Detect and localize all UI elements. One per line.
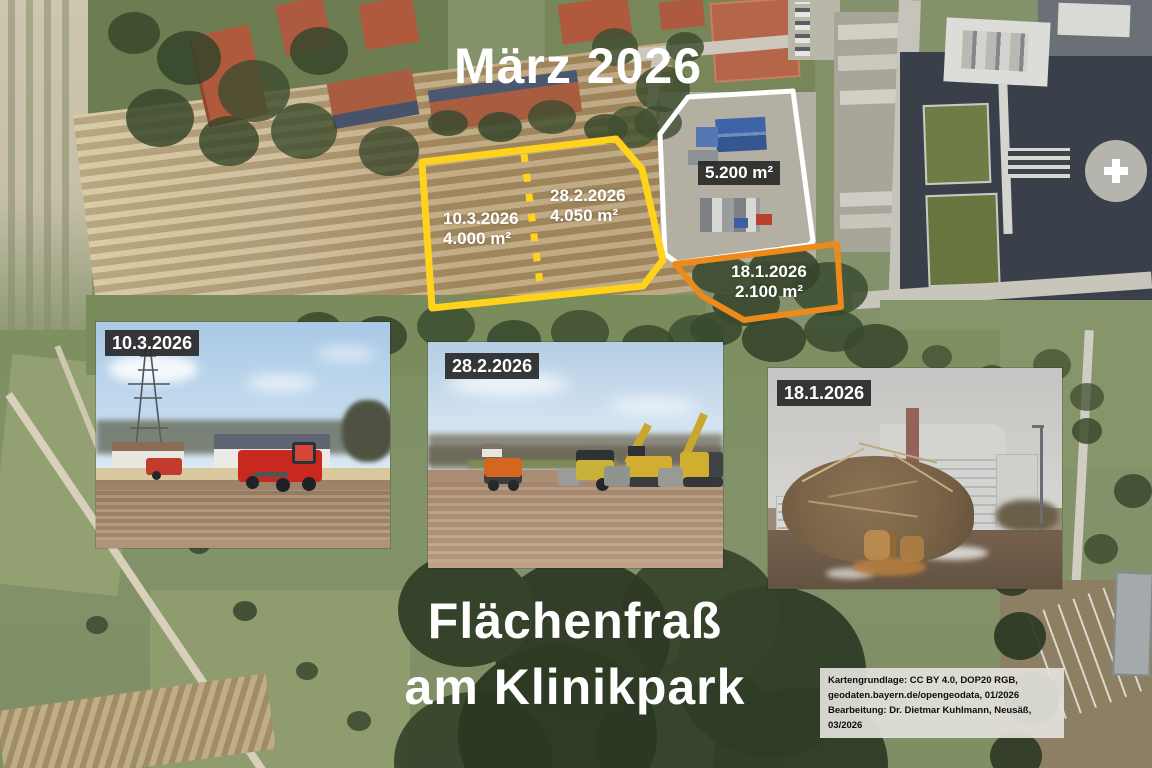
tree-cluster-below-orange (690, 312, 742, 346)
plot-b-date: 28.2.2026 (550, 186, 626, 206)
photo2-bucket-box (604, 466, 630, 486)
credits-box: Kartengrundlage: CC BY 4.0, DOP20 RGB, g… (820, 668, 1064, 738)
photo3-lamp-arm (1032, 425, 1044, 428)
photo2-date-tag: 28.2.2026 (445, 353, 539, 379)
poster-caption: Flächenfraß am Klinikpark (375, 588, 775, 720)
terrain-road-left-tracks (8, 0, 78, 330)
yard-cluster-grey (700, 198, 760, 232)
hospital-white-rooftop-units (961, 30, 1029, 71)
photo1-machine-2-wheel (152, 471, 161, 480)
container-row-1 (838, 23, 900, 40)
tree-cluster-right-lawn (922, 345, 952, 369)
photo2-date-text: 28.2.2026 (452, 356, 532, 376)
photo2-excavator2-body (680, 452, 723, 478)
container-row-2 (838, 54, 900, 71)
helipad (1085, 140, 1147, 202)
photo1-grader-blade (254, 472, 288, 477)
plot-b-label: 28.2.2026 4.050 m² (550, 186, 626, 226)
caption-line-1: Flächenfraß (375, 588, 775, 654)
photo2-cloud (608, 397, 698, 415)
photo2-compactor-wheel (508, 480, 519, 491)
plot-a-area: 4.000 m² (443, 229, 519, 249)
month-title: März 2026 (378, 37, 778, 95)
building-red-5 (659, 0, 706, 30)
plot-a-label: 10.3.2026 4.000 m² (443, 209, 519, 249)
caption-line-2: am Klinikpark (375, 654, 775, 720)
photo2-compactor-wheel (488, 480, 499, 491)
photo2-house (482, 444, 502, 457)
photo3-trunk (864, 530, 896, 560)
photo1-tree-right (342, 400, 390, 462)
yard-container-red (756, 214, 772, 225)
plot-b-area: 4.050 m² (550, 206, 626, 226)
plot-c-label: 5.200 m² (698, 161, 780, 185)
photo3-date-tag: 18.1.2026 (777, 380, 871, 406)
photo1-date-tag: 10.3.2026 (105, 330, 199, 356)
hospital-balcony-rows (1008, 148, 1070, 178)
terrain-parking-cars (795, 2, 810, 56)
photo1-grader-wheel (302, 477, 316, 491)
photo-2026-02-28: 28.2.2026 (428, 342, 723, 568)
plot-c-area: 5.200 m² (705, 163, 773, 182)
plot-a-date: 10.3.2026 (443, 209, 519, 229)
photo3-sawdust (852, 558, 926, 576)
plot-d-label: 18.1.2026 2.100 m² (714, 262, 824, 302)
credits-line-3: Bearbeitung: Dr. Dietmar Kuhlmann, Neusä… (828, 703, 1056, 733)
photo1-date-text: 10.3.2026 (112, 333, 192, 353)
photo1-dirt-streaks (96, 490, 390, 540)
photo-2026-03-10: 10.3.2026 (96, 322, 390, 548)
plot-d-date: 18.1.2026 (714, 262, 824, 282)
yard-container-blue-3 (734, 218, 748, 228)
photo1-grader-cab (292, 442, 316, 464)
hospital-top-right-roof (1057, 3, 1130, 37)
photo2-excavator2-tracks (683, 477, 723, 487)
photo2-dirt-streaks (428, 482, 723, 562)
photo1-machine-2 (146, 458, 182, 475)
photo3-lamp-pole (1040, 426, 1043, 524)
helipad-cross-icon (1104, 167, 1128, 175)
poster-canvas: 10.3.2026 4.000 m² 28.2.2026 4.050 m² 5.… (0, 0, 1152, 768)
yard-container-blue-small (696, 127, 718, 147)
yard-container-blue-large (715, 117, 767, 153)
photo1-cloud (246, 374, 316, 392)
photo3-scrub-right (996, 500, 1058, 532)
photo-2026-01-18: 18.1.2026 (768, 368, 1062, 589)
hospital-green-roof-2 (925, 193, 1000, 287)
tree-cluster-field-top (428, 110, 468, 136)
tree-cluster-topleft (108, 12, 160, 54)
hospital-green-roof-1 (923, 103, 992, 185)
photo1-grader-wheel (276, 478, 290, 492)
plot-d-area: 2.100 m² (714, 282, 824, 302)
container-row-3 (840, 89, 900, 105)
tree-cluster-right-strip (1072, 418, 1102, 444)
photo2-bucket-box (658, 468, 683, 487)
building-bottom-right (1112, 571, 1152, 676)
photo1-cloud (316, 346, 376, 362)
photo1-grader-wheel (246, 476, 259, 489)
photo3-date-text: 18.1.2026 (784, 383, 864, 403)
credits-line-1: Kartengrundlage: CC BY 4.0, DOP20 RGB, (828, 673, 1056, 688)
credits-line-2: geodaten.bayern.de/opengeodata, 01/2026 (828, 688, 1056, 703)
